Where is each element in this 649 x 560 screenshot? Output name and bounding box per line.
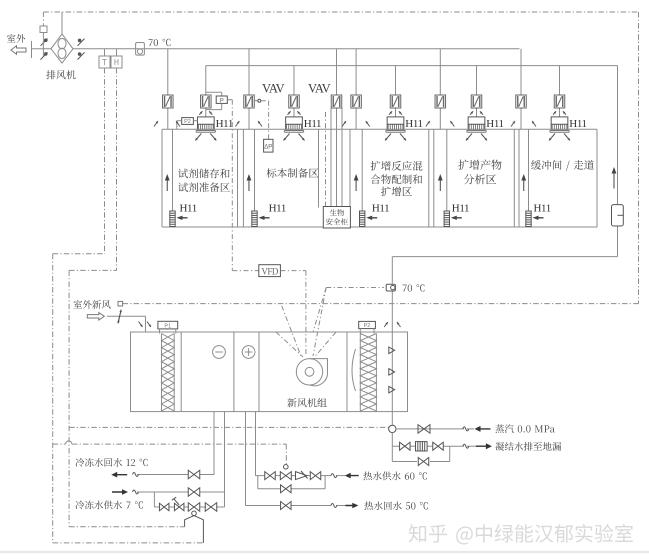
svg-text:H11: H11 bbox=[486, 118, 503, 130]
svg-text:H11: H11 bbox=[372, 203, 389, 215]
svg-text:H: H bbox=[114, 58, 119, 68]
svg-text:H11: H11 bbox=[452, 203, 469, 215]
svg-text:ΔP: ΔP bbox=[264, 144, 272, 150]
svg-text:H11: H11 bbox=[534, 203, 551, 215]
svg-text:H11: H11 bbox=[180, 203, 197, 215]
svg-text:H11: H11 bbox=[304, 118, 321, 130]
svg-text:T: T bbox=[102, 58, 108, 68]
svg-text:VAV: VAV bbox=[308, 82, 331, 96]
svg-text:VAV: VAV bbox=[262, 82, 285, 96]
svg-text:P2: P2 bbox=[364, 323, 371, 329]
svg-text:H11: H11 bbox=[269, 203, 286, 215]
svg-text:H11: H11 bbox=[569, 118, 586, 130]
svg-text:P1: P1 bbox=[164, 323, 171, 329]
svg-text:VFD: VFD bbox=[261, 266, 279, 276]
svg-text:H11: H11 bbox=[405, 118, 422, 130]
svg-text:P2: P2 bbox=[184, 119, 191, 125]
svg-text:H11: H11 bbox=[216, 118, 233, 130]
